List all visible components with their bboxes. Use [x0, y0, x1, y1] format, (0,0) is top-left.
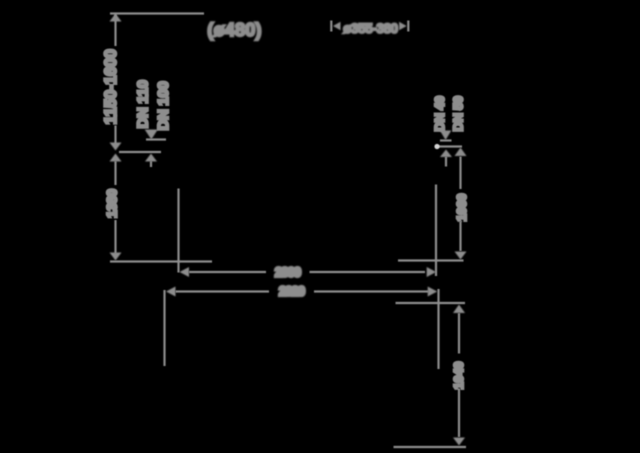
svg-text:DN 100: DN 100 — [155, 81, 172, 130]
svg-text:(ø480): (ø480) — [207, 20, 261, 40]
svg-text:DN 110: DN 110 — [134, 80, 151, 128]
svg-text:2300: 2300 — [275, 265, 301, 280]
svg-text:2320: 2320 — [279, 284, 305, 299]
svg-text:1040: 1040 — [451, 362, 466, 390]
svg-text:DN 40: DN 40 — [432, 96, 447, 131]
svg-text:1380: 1380 — [105, 189, 120, 218]
svg-text:1150-1600: 1150-1600 — [102, 49, 120, 124]
svg-text:1060: 1060 — [454, 194, 469, 222]
svg-text:ø355-380: ø355-380 — [343, 21, 398, 36]
svg-text:DN 50: DN 50 — [451, 96, 466, 131]
